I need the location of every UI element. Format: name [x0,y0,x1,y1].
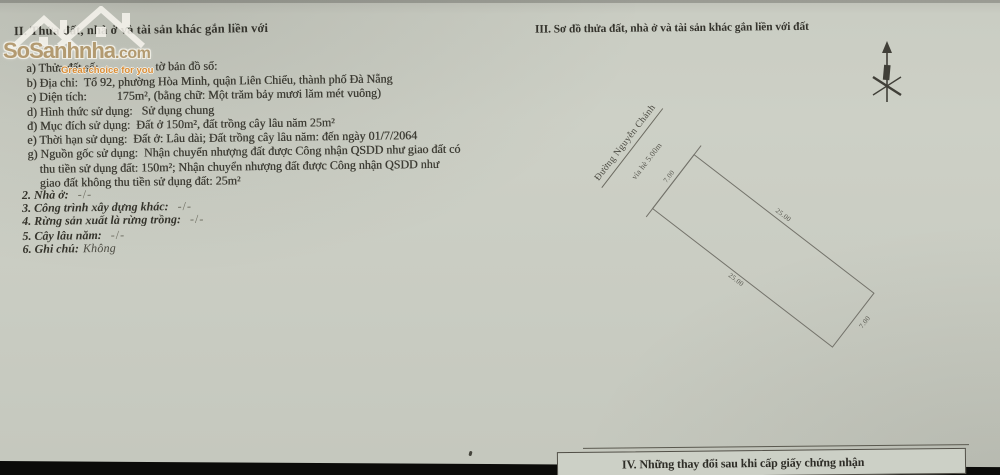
item-perennial-trees-value: -/- [102,227,125,241]
item-forest: 4. Rừng sản xuất là rừng trồng:-/- [22,211,204,228]
dimension-rear: 7.00 [854,309,876,334]
section2-heading: II. Thửa đất, nhà ở và tài sản khác gắn … [14,21,268,39]
dimension-side-top: 25.00 [771,205,795,226]
section4-heading: IV. Những thay đổi sau khi cấp giấy chứn… [622,455,864,473]
item-forest-label: 4. Rừng sản xuất là rừng trồng: [22,212,181,228]
section4-header-box: IV. Những thay đổi sau khi cấp giấy chứn… [557,448,966,475]
section3-heading: III. Sơ đồ thửa đất, nhà ở và tài sản kh… [535,20,855,35]
photo-top-edge-shade [0,0,1000,3]
document-photo: II. Thửa đất, nhà ở và tài sản khác gắn … [0,0,1000,475]
street-name-label: Đường Nguyễn Chánh [591,100,663,188]
item-notes-value: Không [79,241,116,255]
item-notes: 6. Ghi chú:Không [22,241,116,257]
north-arrow-icon [868,40,908,110]
item-notes-label: 6. Ghi chú: [22,241,79,256]
plot-boundary: Đường Nguyễn Chánh vỉa hè 5.00m 7.00 7.0… [652,154,875,348]
ink-speck [468,451,472,457]
dimension-side-bottom: 25.00 [724,269,748,290]
item-forest-value: -/- [181,211,204,225]
